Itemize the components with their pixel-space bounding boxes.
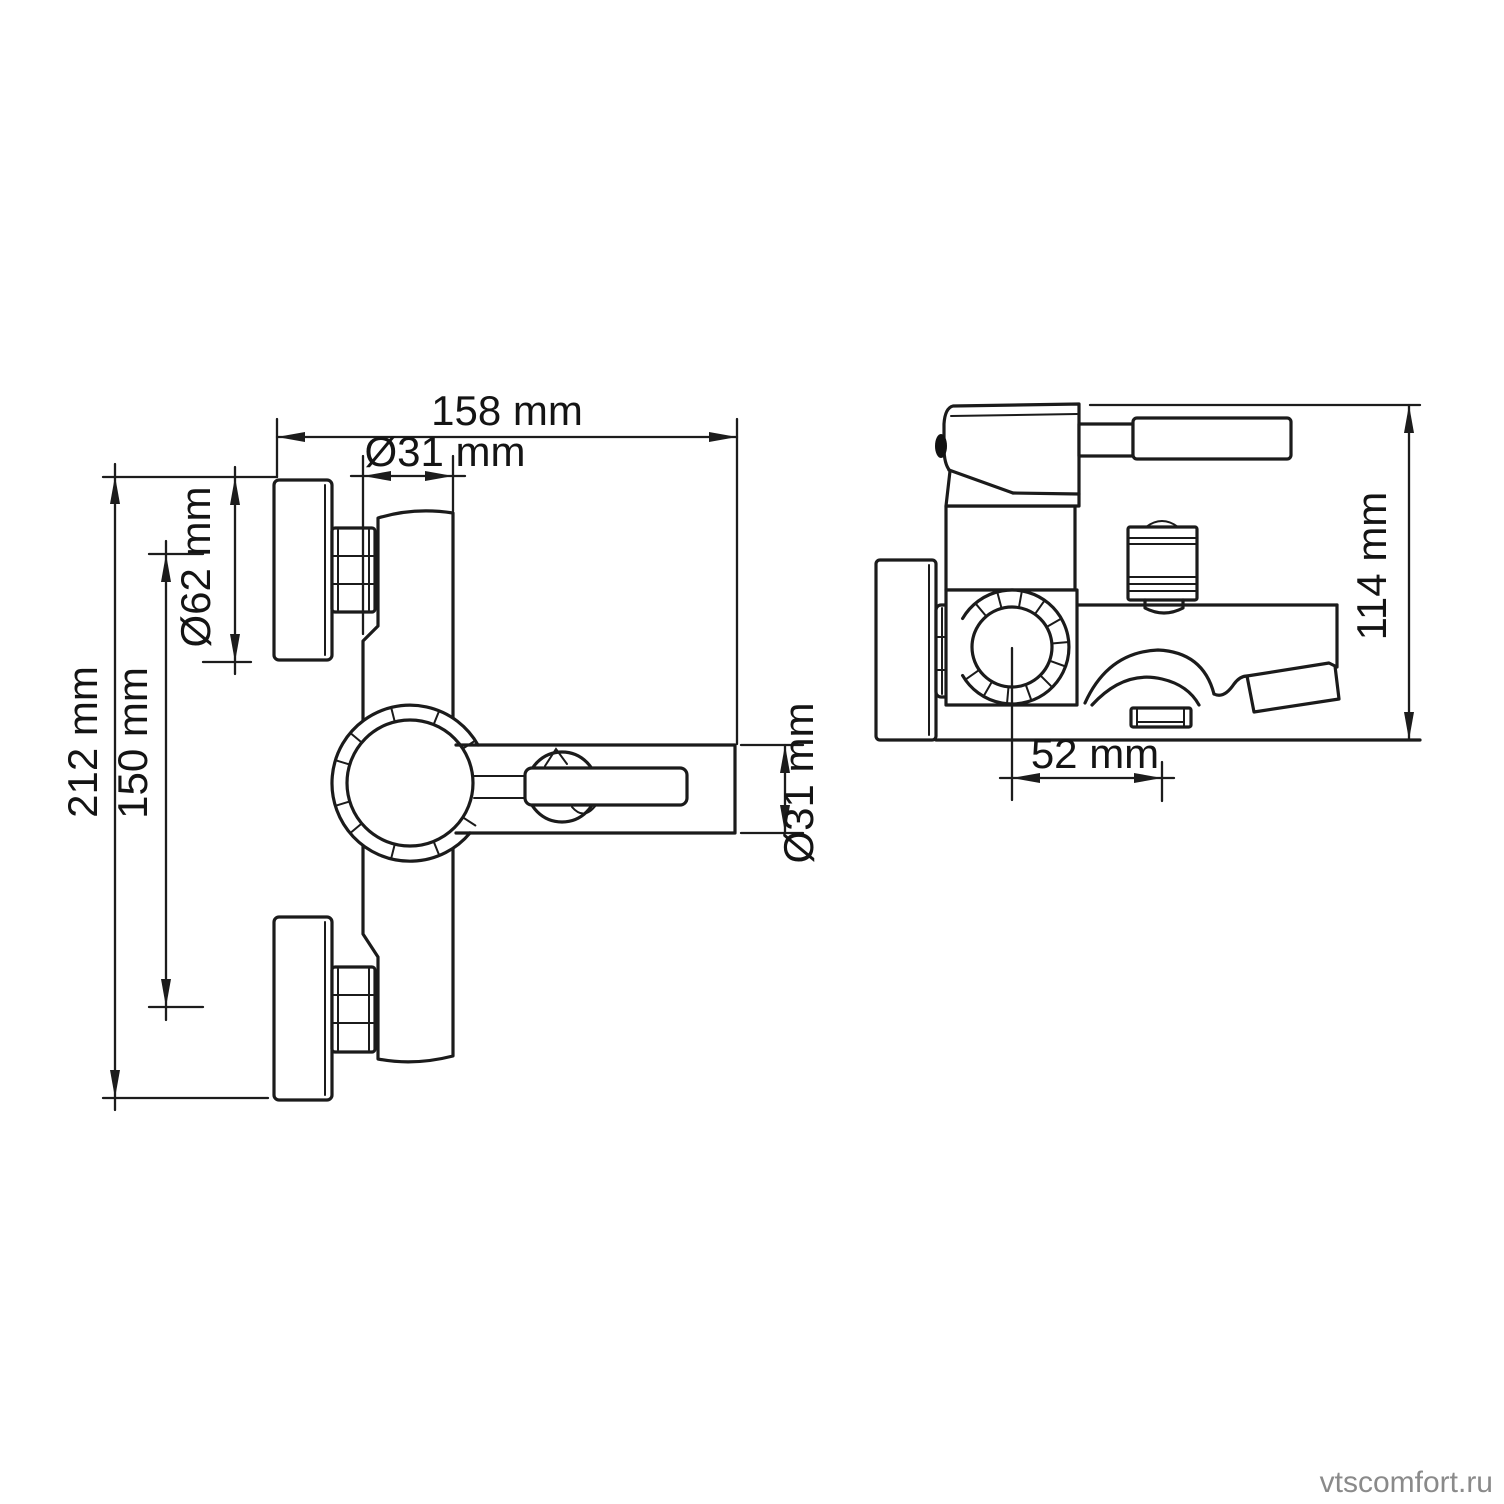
front-bottom-escutcheon — [274, 917, 332, 1100]
side-bottom-outlet — [1131, 708, 1191, 727]
side-diverter-knob — [1128, 521, 1197, 613]
front-view-drawing — [274, 480, 735, 1100]
front-top-nut — [332, 528, 375, 612]
dim-label-overall-height: 212 mm — [59, 666, 106, 818]
dim-front-escutcheon-diameter: Ø62 mm — [172, 467, 251, 674]
side-escutcheon — [876, 560, 936, 740]
front-bottom-nut — [332, 967, 375, 1052]
front-top-escutcheon — [274, 480, 332, 660]
dim-front-arm-diameter: Ø31 mm — [741, 702, 822, 863]
dim-label-overall-depth: 114 mm — [1348, 492, 1395, 641]
watermark-text: vtscomfort.ru — [1320, 1466, 1493, 1499]
dim-label-wall-to-center: 52 mm — [1031, 730, 1159, 777]
technical-drawing-page: 158 mm Ø31 mm Ø62 mm 150 mm — [0, 0, 1504, 1504]
faucet-technical-drawing: 158 mm Ø31 mm Ø62 mm 150 mm — [0, 0, 1504, 1504]
dim-label-overall-width: 158 mm — [431, 387, 583, 434]
side-riser — [946, 506, 1075, 590]
dim-front-overall-height: 212 mm — [59, 464, 277, 1110]
side-view-drawing — [876, 404, 1420, 740]
side-spout — [1078, 605, 1339, 727]
side-cartridge-housing — [935, 404, 1079, 506]
dim-label-body-diameter: Ø31 mm — [364, 428, 525, 475]
side-indicator-dot — [935, 434, 947, 458]
side-handle-lever — [1079, 418, 1291, 459]
front-lever-handle — [525, 768, 687, 805]
dim-label-escutcheon-diameter: Ø62 mm — [172, 486, 219, 647]
dim-label-arm-diameter: Ø31 mm — [775, 702, 822, 863]
side-spout-tip — [1247, 663, 1339, 712]
